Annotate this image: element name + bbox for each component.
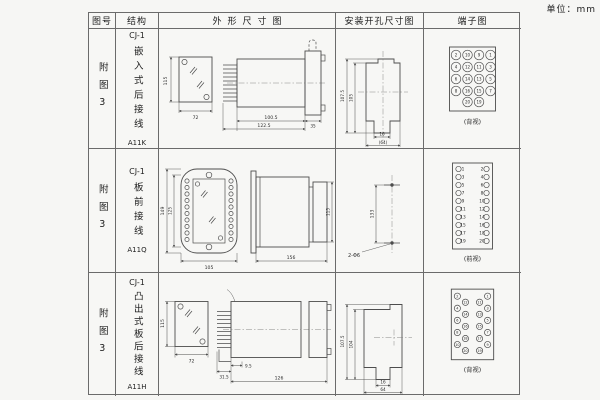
terminal-circle <box>185 211 189 215</box>
terminal-number: 11 <box>460 207 466 213</box>
figure-no-label: 附图3 <box>97 184 107 238</box>
terminal-number: 18 <box>479 231 485 237</box>
terminal-circle <box>484 174 489 179</box>
col-header-structure: 结构 <box>116 13 159 29</box>
install-drawing-cell: 133 2-Φ6 <box>336 149 424 273</box>
figure-no-label: 附图3 <box>97 62 107 116</box>
terminal-number: 10 <box>479 199 485 205</box>
dim-front-height: 115 <box>163 77 169 86</box>
terminal-circle <box>185 198 189 202</box>
dim-front-height: 149 <box>160 207 166 216</box>
terminal-number: 10 <box>465 53 471 58</box>
terminal-number: 17 <box>477 337 481 341</box>
terminal-drawing-cell: 210914121136141358161572019 (背视) <box>424 29 521 149</box>
terminal-number: 10 <box>455 343 459 347</box>
code-label: A11H <box>128 383 147 391</box>
dim-panel-offset: 9.5 <box>245 364 252 369</box>
terminal-circle <box>456 198 461 203</box>
figure-no-cell: 附图3 <box>89 273 116 396</box>
terminal-circle <box>456 174 461 179</box>
terminal-number: 6 <box>456 319 458 323</box>
figure-no-cell: 附图3 <box>89 29 116 149</box>
model-label: CJ-1 <box>129 167 145 176</box>
terminal-circle <box>185 205 189 209</box>
col-header-outline: 外形尺寸图 <box>159 13 336 29</box>
outline-drawing-row3: 115 72 31.5 9.5 126 <box>159 273 335 396</box>
terminal-circle <box>229 179 233 183</box>
terminal-number: 19 <box>460 239 466 245</box>
col-header-terminal: 端子图 <box>424 13 521 29</box>
terminal-number: 8 <box>456 331 458 335</box>
terminal-circle <box>185 218 189 222</box>
terminal-circle <box>484 166 489 171</box>
spec-table: 图号 结构 外形尺寸图 安装开孔尺寸图 端子图 附图3 CJ-1 嵌入式后接线 … <box>88 12 520 395</box>
terminal-number: 12 <box>463 300 467 304</box>
handle <box>227 290 235 302</box>
terminal-drawing-row1: 210914121136141358161572019 (背视) <box>424 29 521 148</box>
structure-cell: CJ-1 凸出式板后接线 A11H <box>116 273 159 396</box>
terminal-number: 9 <box>478 53 481 58</box>
terminal-number: 6 <box>481 183 484 189</box>
terminal-circle <box>229 198 233 202</box>
outline-drawing-row2: 149 125 105 156 115 <box>159 149 335 272</box>
install-drawing-cell: 107.5 105 16 (64) <box>336 29 424 149</box>
terminal-number: 5 <box>489 77 492 82</box>
dim-overall-width: (64) <box>379 140 388 145</box>
terminal-number: 17 <box>460 231 466 237</box>
dim-pin-depth: 31.5 <box>219 375 229 380</box>
structure-cell: CJ-1 板前接线 A11Q <box>116 149 159 273</box>
terminal-number: 20 <box>479 239 485 245</box>
terminal-number: 19 <box>476 100 482 105</box>
terminal-circle <box>229 224 233 228</box>
dim-hole-spacing: 133 <box>370 210 376 219</box>
dim-overall-width: 64 <box>380 387 386 392</box>
outline-drawing-row1: 115 72 100.5 122.5 35 <box>159 29 335 148</box>
terminal-number: 15 <box>477 325 481 329</box>
terminal-number: 4 <box>455 65 458 70</box>
terminal-number: 3 <box>462 175 465 181</box>
terminal-number: 1 <box>462 167 465 173</box>
terminal-number: 3 <box>489 65 492 70</box>
install-drawing-row3: 107.5 104 16 64 <box>336 273 423 396</box>
terminal-number: 18 <box>463 337 467 341</box>
terminal-number: 15 <box>476 89 482 94</box>
outline-drawing-cell: 115 72 31.5 9.5 126 <box>159 273 336 396</box>
terminal-circle <box>185 179 189 183</box>
code-label: A11Q <box>127 246 146 254</box>
mount-type-label: 凸出式板后接线 <box>132 291 142 379</box>
col-header-install: 安装开孔尺寸图 <box>336 13 424 29</box>
terminal-circle <box>229 205 233 209</box>
terminal-number: 9 <box>487 343 489 347</box>
terminal-drawing-cell: 2468101214161820111315171913579 (背视) <box>424 273 521 396</box>
terminal-number: 4 <box>481 175 484 181</box>
terminal-circle <box>185 231 189 235</box>
terminal-circle <box>185 224 189 228</box>
dim-slot-width: 16 <box>380 380 386 385</box>
terminal-circle <box>229 192 233 196</box>
dim-body-depth: 100.5 <box>264 115 277 121</box>
terminal-number: 13 <box>460 215 466 221</box>
model-label: CJ-1 <box>129 278 145 287</box>
mount-type-label: 板前接线 <box>132 182 142 240</box>
terminal-number: 4 <box>456 306 458 310</box>
terminal-number: 13 <box>477 313 481 317</box>
dim-front-width: 72 <box>189 359 195 365</box>
dim-body-depth: 126 <box>275 376 284 382</box>
dim-total-depth: 122.5 <box>257 123 270 129</box>
dim-front-width: 105 <box>205 265 214 271</box>
dim-front-height: 115 <box>160 319 166 328</box>
dim-flange-depth: 35 <box>310 124 316 129</box>
terminal-circle <box>456 166 461 171</box>
dim-body-depth: 156 <box>287 255 296 261</box>
terminal-circle <box>229 211 233 215</box>
terminal-circle <box>229 237 233 241</box>
terminal-circle <box>229 231 233 235</box>
terminal-number: 7 <box>462 191 465 197</box>
terminal-number: 13 <box>476 77 482 82</box>
model-label: CJ-1 <box>129 31 145 40</box>
terminal-number: 8 <box>455 89 458 94</box>
front-terminal-pins <box>185 179 233 242</box>
terminal-circle <box>185 192 189 196</box>
terminal-number: 20 <box>465 100 471 105</box>
install-drawing-cell: 107.5 104 16 64 <box>336 273 424 396</box>
terminal-number: 16 <box>463 325 467 329</box>
terminal-drawing-row3: 2468101214161820111315171913579 (背视) <box>424 273 521 396</box>
terminal-number: 5 <box>462 183 465 189</box>
col-header-figure-no: 图号 <box>89 13 116 29</box>
terminal-number: 19 <box>477 349 481 353</box>
terminal-number: 8 <box>481 191 484 197</box>
install-drawing-row1: 107.5 105 16 (64) <box>336 29 423 148</box>
dim-side-height: 115 <box>326 208 331 216</box>
glass-hatch <box>190 67 204 89</box>
dim-inner-height: 104 <box>349 340 354 348</box>
terminal-circle <box>229 185 233 189</box>
terminal-circle <box>484 182 489 187</box>
dim-front-width: 72 <box>193 115 199 121</box>
dim-window-height: 125 <box>168 207 173 215</box>
terminal-drawing-row2: 1357911131517192468101214161820 (前视) <box>424 149 521 272</box>
terminal-circle <box>185 237 189 241</box>
terminal-number: 11 <box>476 65 482 70</box>
terminal-number: 5 <box>487 319 489 323</box>
code-label: A11K <box>128 139 146 147</box>
mount-type-label: 嵌入式后接线 <box>132 46 142 133</box>
dim-slot-width: 16 <box>379 132 385 137</box>
terminal-circle <box>456 182 461 187</box>
terminal-number: 1 <box>487 294 489 298</box>
terminal-number: 14 <box>463 313 467 317</box>
figure-no-cell: 附图3 <box>89 149 116 273</box>
unit-note: 单位：mm <box>546 2 596 15</box>
dim-inner-height: 105 <box>349 94 354 102</box>
terminal-number: 14 <box>465 77 471 82</box>
terminal-number: 6 <box>455 77 458 82</box>
terminal-number: 20 <box>463 349 467 353</box>
terminal-drawing-cell: 1357911131517192468101214161820 (前视) <box>424 149 521 273</box>
structure-cell: CJ-1 嵌入式后接线 A11K <box>116 29 159 149</box>
terminal-grid: 2468101214161820111315171913579 <box>454 293 490 354</box>
terminal-number: 3 <box>487 306 489 310</box>
install-drawing-row2: 133 2-Φ6 <box>336 149 423 272</box>
dim-outer-height: 107.5 <box>340 335 345 347</box>
terminal-number: 9 <box>462 199 465 205</box>
terminal-circle <box>185 185 189 189</box>
terminal-circle <box>456 190 461 195</box>
terminal-caption: (前视) <box>464 255 481 263</box>
terminal-number: 14 <box>479 215 485 221</box>
outline-drawing-cell: 149 125 105 156 115 <box>159 149 336 273</box>
dim-outer-height: 107.5 <box>340 90 345 102</box>
terminal-circle <box>229 218 233 222</box>
terminal-caption: (背视) <box>464 365 481 374</box>
terminal-grid: 210914121136141358161572019 <box>451 50 495 107</box>
terminal-caption: (背视) <box>464 118 481 126</box>
terminal-grid: 1357911131517192468101214161820 <box>456 166 489 244</box>
terminal-circle <box>484 190 489 195</box>
terminal-number: 7 <box>489 89 492 94</box>
terminal-number: 12 <box>465 65 471 70</box>
terminal-number: 12 <box>479 207 485 213</box>
figure-no-label: 附图3 <box>97 308 107 362</box>
terminal-number: 2 <box>481 167 484 173</box>
terminal-number: 15 <box>460 223 466 229</box>
outline-drawing-cell: 115 72 100.5 122.5 35 <box>159 29 336 149</box>
terminal-number: 11 <box>477 300 481 304</box>
terminal-number: 16 <box>479 223 485 229</box>
glass-hatch <box>185 310 200 335</box>
terminal-number: 2 <box>456 294 458 298</box>
terminal-number: 7 <box>487 331 489 335</box>
terminal-number: 1 <box>489 53 492 58</box>
terminal-number: 16 <box>465 89 471 94</box>
handle <box>309 40 316 51</box>
terminal-number: 2 <box>455 53 458 58</box>
holes-label: 2-Φ6 <box>348 253 360 259</box>
glass-hatch <box>201 191 216 224</box>
